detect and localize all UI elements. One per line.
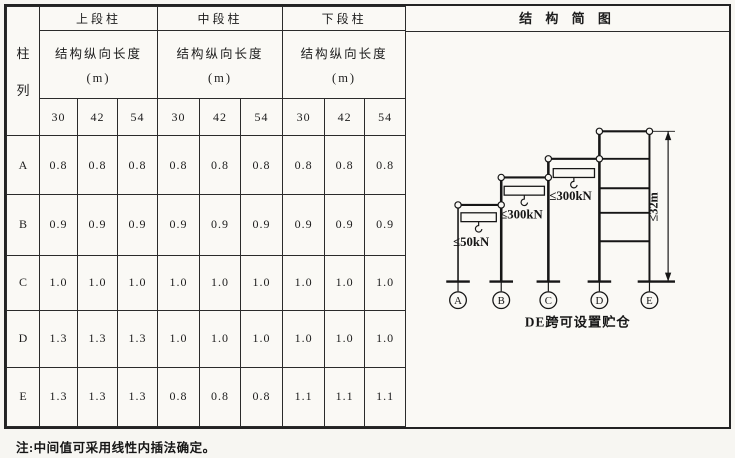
axis-label-b: B	[498, 295, 505, 307]
dimension-arrow-up	[665, 131, 671, 140]
axis-label-d: D	[595, 295, 603, 307]
span-header: 54	[241, 99, 283, 136]
span-header: 30	[158, 99, 200, 136]
length-label: 结构纵向长度	[55, 43, 142, 62]
value-cell: 0.9	[325, 195, 365, 255]
footnote: 注:中间值可采用线性内插法确定。	[16, 437, 216, 456]
value-cell: 1.0	[283, 255, 325, 310]
value-cell: 1.1	[283, 367, 325, 426]
value-cell: 0.9	[283, 195, 325, 255]
value-cell: 0.8	[78, 136, 118, 195]
axis-label-a: A	[454, 295, 462, 307]
value-cell: 1.0	[40, 255, 78, 310]
group-header-lower-column: 下段柱	[283, 7, 406, 31]
value-cell: 1.3	[78, 310, 118, 367]
value-cell: 1.1	[365, 367, 406, 426]
value-cell: 0.8	[241, 367, 283, 426]
value-cell: 0.9	[241, 195, 283, 255]
value-cell: 0.8	[241, 136, 283, 195]
structure-diagram-panel: 结 构 简 图	[405, 6, 729, 427]
row-label-a: A	[7, 136, 40, 195]
value-cell: 0.9	[200, 195, 241, 255]
value-cell: 0.9	[78, 195, 118, 255]
length-unit: (m)	[86, 71, 110, 86]
crane-load-label-cd: ≤300kN	[549, 189, 592, 203]
value-cell: 0.9	[365, 195, 406, 255]
value-cell: 0.8	[200, 136, 241, 195]
value-cell: 0.8	[283, 136, 325, 195]
length-unit: (m)	[332, 71, 356, 86]
value-cell: 0.9	[118, 195, 158, 255]
row-label-d: D	[7, 310, 40, 367]
table-row: D 1.3 1.3 1.3 1.0 1.0 1.0 1.0 1.0 1.0	[7, 310, 406, 367]
crane-load-label-ab: ≤50kN	[453, 235, 490, 249]
value-cell: 0.9	[40, 195, 78, 255]
value-cell: 1.0	[325, 310, 365, 367]
value-cell: 1.1	[325, 367, 365, 426]
crane-hook-ab	[475, 222, 481, 232]
diagram-caption: DE跨可设置贮仓	[525, 314, 631, 330]
diagram-title: 结 构 简 图	[406, 6, 729, 32]
value-cell: 1.0	[158, 310, 200, 367]
length-header-middle: 结构纵向长度 (m)	[158, 31, 283, 99]
document-frame: 柱 列 上段柱 中段柱 下段柱 结构纵向长度 (m) 结构纵向长度	[4, 4, 731, 429]
value-cell: 1.0	[325, 255, 365, 310]
stepped-frame-diagram: ≤50kN ≤300kN ≤300kN ≤32m A B C D E DE跨可设…	[406, 32, 728, 426]
group-header-middle-column: 中段柱	[158, 7, 283, 31]
axis-bubbles	[450, 292, 658, 309]
crane-girder-bc	[504, 186, 544, 195]
span-header: 42	[325, 99, 365, 136]
table-row: A 0.8 0.8 0.8 0.8 0.8 0.8 0.8 0.8 0.8	[7, 136, 406, 195]
row-label-b: B	[7, 195, 40, 255]
value-cell: 1.0	[283, 310, 325, 367]
value-cell: 0.8	[200, 367, 241, 426]
length-header-upper: 结构纵向长度 (m)	[40, 31, 158, 99]
value-cell: 1.0	[365, 310, 406, 367]
value-cell: 0.8	[158, 367, 200, 426]
length-header-lower: 结构纵向长度 (m)	[283, 31, 406, 99]
crane-load-label-bc: ≤300kN	[500, 208, 543, 222]
value-cell: 1.3	[40, 367, 78, 426]
row-label-e: E	[7, 367, 40, 426]
value-cell: 1.0	[200, 255, 241, 310]
corner-header-cell: 柱 列	[7, 7, 40, 136]
span-header: 30	[40, 99, 78, 136]
value-cell: 0.8	[118, 136, 158, 195]
table-header-row-groups: 柱 列 上段柱 中段柱 下段柱	[7, 7, 406, 31]
value-cell: 1.0	[158, 255, 200, 310]
length-label: 结构纵向长度	[301, 43, 388, 62]
value-cell: 1.3	[40, 310, 78, 367]
value-cell: 1.3	[118, 310, 158, 367]
value-cell: 1.0	[241, 255, 283, 310]
axis-stems	[458, 282, 649, 292]
length-unit: (m)	[208, 71, 232, 86]
axis-label-e: E	[646, 295, 653, 307]
span-header: 42	[78, 99, 118, 136]
height-dimension-label: ≤32m	[646, 192, 660, 221]
value-cell: 0.8	[158, 136, 200, 195]
corner-label-bottom: 列	[16, 80, 29, 99]
value-cell: 0.8	[325, 136, 365, 195]
value-cell: 1.3	[78, 367, 118, 426]
value-cell: 1.3	[118, 367, 158, 426]
crane-girder-cd	[553, 169, 594, 178]
crane-hook-bc	[521, 195, 527, 205]
value-cell: 1.0	[200, 310, 241, 367]
value-cell: 1.0	[118, 255, 158, 310]
crane-hook-cd	[571, 177, 577, 187]
value-cell: 0.8	[365, 136, 406, 195]
group-header-upper-column: 上段柱	[40, 7, 158, 31]
table-row: B 0.9 0.9 0.9 0.9 0.9 0.9 0.9 0.9 0.9	[7, 195, 406, 255]
table-header-row-spans: 30 42 54 30 42 54 30 42 54	[7, 99, 406, 136]
span-header: 30	[283, 99, 325, 136]
axis-label-c: C	[545, 295, 552, 307]
value-cell: 1.0	[241, 310, 283, 367]
table-row: C 1.0 1.0 1.0 1.0 1.0 1.0 1.0 1.0 1.0	[7, 255, 406, 310]
row-label-c: C	[7, 255, 40, 310]
value-cell: 1.0	[78, 255, 118, 310]
span-header: 42	[200, 99, 241, 136]
corner-label-top: 柱	[16, 43, 29, 62]
table-row: E 1.3 1.3 1.3 0.8 0.8 0.8 1.1 1.1 1.1	[7, 367, 406, 426]
value-cell: 0.9	[158, 195, 200, 255]
crane-girder-ab	[461, 213, 496, 222]
dimension-arrow-down	[665, 273, 671, 282]
value-cell: 1.0	[365, 255, 406, 310]
span-header: 54	[365, 99, 406, 136]
span-header: 54	[118, 99, 158, 136]
length-label: 结构纵向长度	[177, 43, 264, 62]
column-length-table: 柱 列 上段柱 中段柱 下段柱 结构纵向长度 (m) 结构纵向长度	[6, 6, 406, 427]
table-header-row-length: 结构纵向长度 (m) 结构纵向长度 (m) 结构纵向长度 (m)	[7, 31, 406, 99]
value-cell: 0.8	[40, 136, 78, 195]
